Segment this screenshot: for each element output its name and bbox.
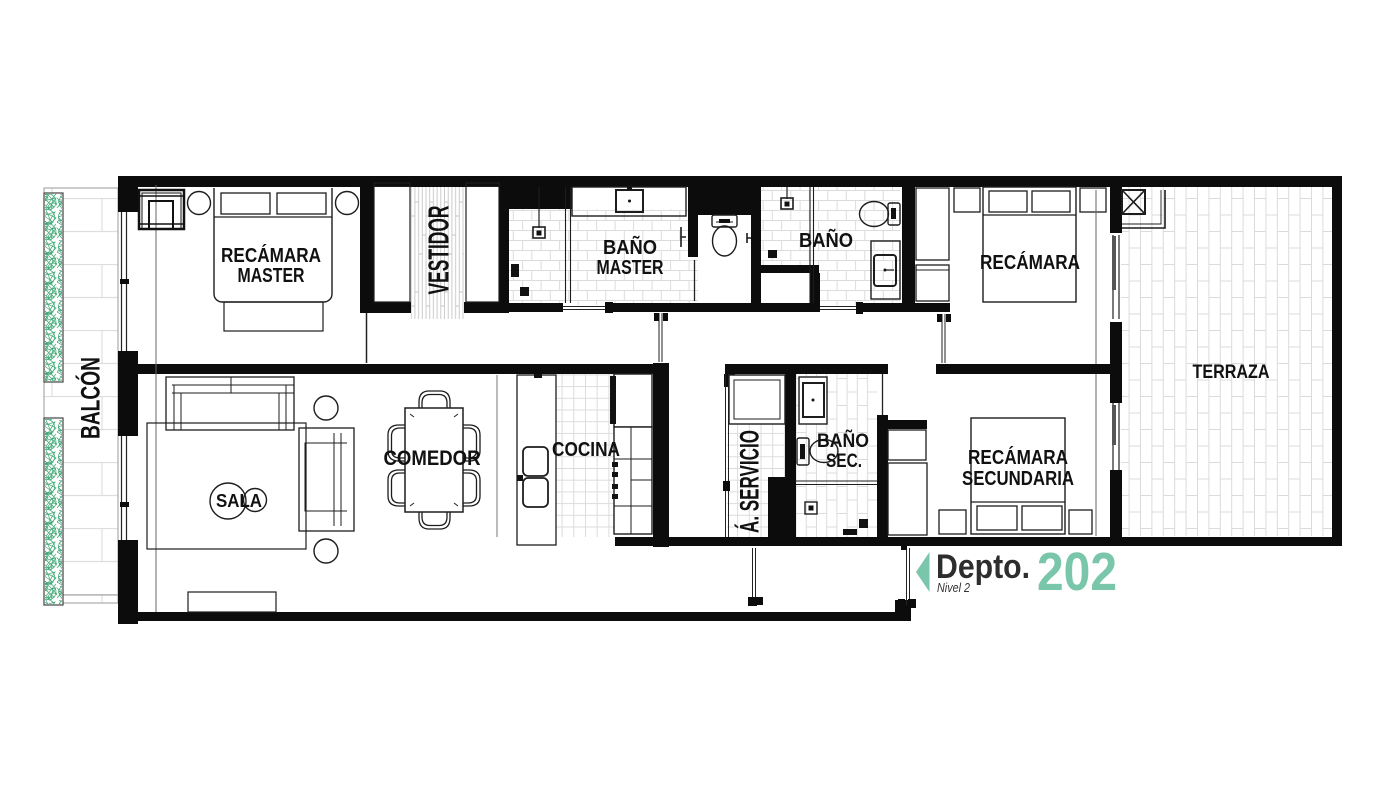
svg-text:202: 202 (1037, 542, 1117, 602)
svg-text:BAÑO: BAÑO (799, 229, 853, 252)
svg-text:BAÑO: BAÑO (603, 236, 657, 259)
svg-text:Nivel 2: Nivel 2 (937, 581, 970, 595)
svg-text:BALCÓN: BALCÓN (76, 357, 106, 439)
svg-text:TERRAZA: TERRAZA (1193, 362, 1270, 383)
svg-text:VESTIDOR: VESTIDOR (424, 205, 456, 294)
svg-text:RECÁMARA: RECÁMARA (980, 251, 1080, 274)
svg-text:Á. SERVICIO: Á. SERVICIO (734, 430, 765, 533)
svg-text:RECÁMARA: RECÁMARA (221, 244, 321, 267)
svg-text:SALA: SALA (216, 491, 262, 511)
svg-text:MASTER: MASTER (238, 265, 305, 287)
svg-text:RECÁMARA: RECÁMARA (968, 446, 1068, 469)
svg-text:SEC.: SEC. (826, 451, 862, 472)
svg-text:BAÑO: BAÑO (817, 430, 869, 452)
svg-text:COCINA: COCINA (552, 439, 620, 461)
svg-text:SECUNDARIA: SECUNDARIA (962, 468, 1074, 490)
svg-text:MASTER: MASTER (597, 257, 664, 279)
svg-text:COMEDOR: COMEDOR (384, 447, 481, 470)
